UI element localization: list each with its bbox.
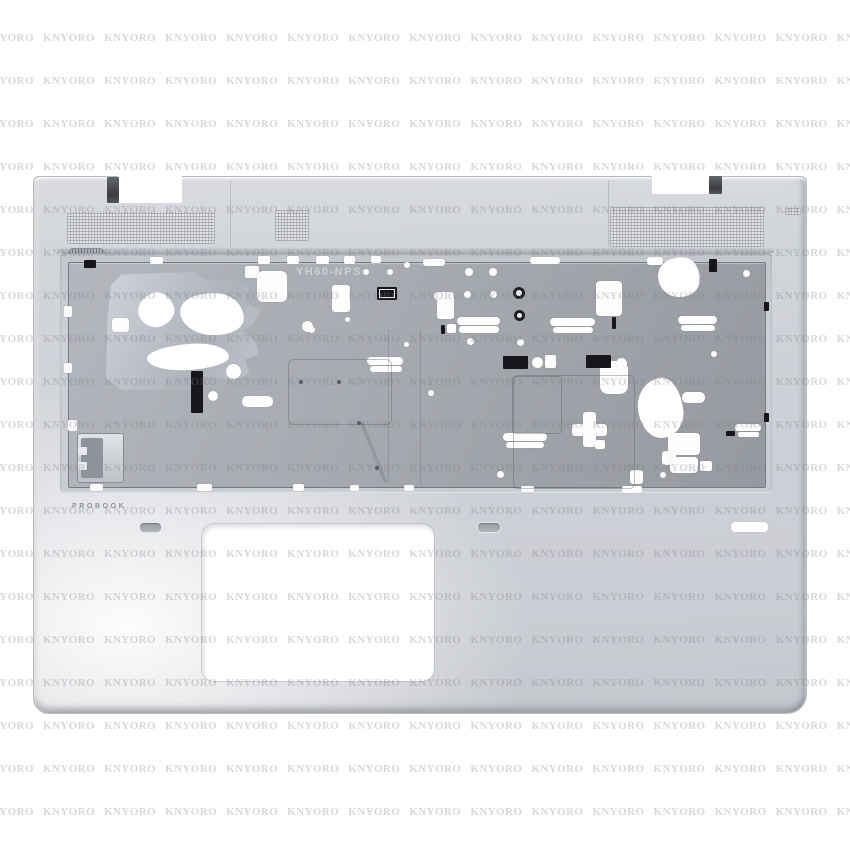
caddy-bracket-inner	[81, 438, 103, 478]
cutout-shape	[513, 375, 635, 489]
cutout-shape	[434, 292, 442, 300]
cutout-shape	[514, 310, 525, 321]
tape-shape	[84, 260, 96, 268]
cutout-shape	[226, 364, 241, 379]
cutout-shape	[738, 432, 759, 437]
cutout-shape	[735, 424, 761, 431]
cutout-shape	[345, 317, 350, 322]
cutout-shape	[711, 351, 717, 357]
caddy-notch	[78, 462, 87, 470]
cutout-shape	[404, 342, 409, 347]
tape-shape	[764, 413, 769, 422]
cutout-shape	[670, 457, 698, 473]
latch-indent-center	[477, 522, 501, 533]
cutout-shape	[387, 269, 393, 275]
cutout-shape	[357, 421, 361, 425]
cutout-shape	[513, 287, 525, 299]
touchpad-cutout	[202, 524, 434, 681]
cutout-shape	[90, 484, 103, 491]
cutout-shape	[428, 390, 434, 396]
cutout-shape	[302, 321, 313, 332]
cutout-shape	[467, 338, 474, 345]
cutout-shape	[457, 317, 500, 325]
cutout-shape	[146, 342, 229, 372]
cutout-shape	[360, 422, 387, 482]
cutout-shape	[545, 355, 556, 368]
cutout-shape	[635, 376, 686, 440]
cutout-shape	[530, 257, 560, 264]
cutout-shape	[242, 396, 273, 407]
tape-shape	[612, 317, 616, 329]
tape-shape	[709, 259, 717, 272]
tape-shape	[503, 356, 528, 369]
cutout-shape	[197, 484, 212, 491]
cutout-shape	[68, 420, 77, 431]
cutout-shape	[447, 324, 456, 333]
cutout-shape	[596, 281, 622, 316]
cutout-shape	[660, 472, 666, 478]
cutout-shape	[208, 391, 218, 401]
cutout-shape	[337, 380, 341, 384]
cutout-shape	[299, 380, 303, 384]
cutout-shape	[647, 257, 663, 265]
cutout-shape	[678, 316, 717, 324]
cutout-shape	[388, 330, 389, 485]
cutout-shape	[404, 262, 410, 268]
cutout-shape	[700, 461, 712, 471]
cutout-shape	[112, 318, 129, 332]
cutout-shape	[344, 256, 355, 264]
cutout-shape	[287, 256, 299, 264]
cutout-shape	[404, 485, 414, 491]
tape-shape	[726, 431, 735, 436]
cutout-shape	[350, 485, 359, 491]
cutout-shape	[178, 290, 245, 337]
cutout-shape	[465, 268, 473, 276]
cutout-shape	[464, 291, 471, 298]
cutout-shape	[64, 306, 72, 317]
cutout-shape	[682, 392, 705, 403]
cutout-shape	[332, 285, 350, 312]
brand-label: PROBOOK	[72, 503, 126, 510]
cutout-shape	[133, 288, 178, 332]
cutout-shape	[532, 357, 543, 368]
cutout-shape	[375, 466, 379, 470]
cutout-shape	[293, 484, 304, 491]
cutout-shape	[616, 358, 627, 369]
caddy-notch	[78, 447, 87, 455]
product-photo: YH60-NPS PROBOOK KNYORO KNYORO KNYORO KN…	[0, 0, 850, 850]
cutout-shape	[288, 359, 392, 425]
cutout-shape	[459, 326, 499, 333]
tape-shape	[377, 287, 397, 300]
cutout-shape	[316, 256, 329, 264]
cutout-shape	[257, 271, 287, 302]
tape-shape	[441, 325, 445, 334]
cutout-shape	[497, 471, 504, 478]
cutout-shape	[420, 330, 421, 485]
deck-cutouts	[0, 0, 850, 850]
cutout-shape	[423, 259, 445, 266]
cutout-shape	[517, 339, 524, 346]
cutout-shape	[743, 270, 750, 277]
cutout-shape	[553, 327, 593, 333]
latch-indent-left	[139, 522, 162, 533]
latch-slot-right	[730, 521, 769, 533]
cutout-shape	[150, 257, 163, 264]
cutout-shape	[64, 363, 72, 373]
cutout-shape	[363, 269, 369, 275]
tape-shape	[764, 302, 769, 311]
tape-shape	[586, 355, 611, 368]
cutout-shape	[490, 291, 497, 298]
cutout-shape	[489, 268, 497, 276]
cutout-shape	[258, 256, 270, 264]
cutout-shape	[681, 325, 715, 331]
tape-shape	[191, 371, 203, 413]
cutout-shape	[371, 256, 381, 263]
cutout-shape	[550, 318, 595, 326]
